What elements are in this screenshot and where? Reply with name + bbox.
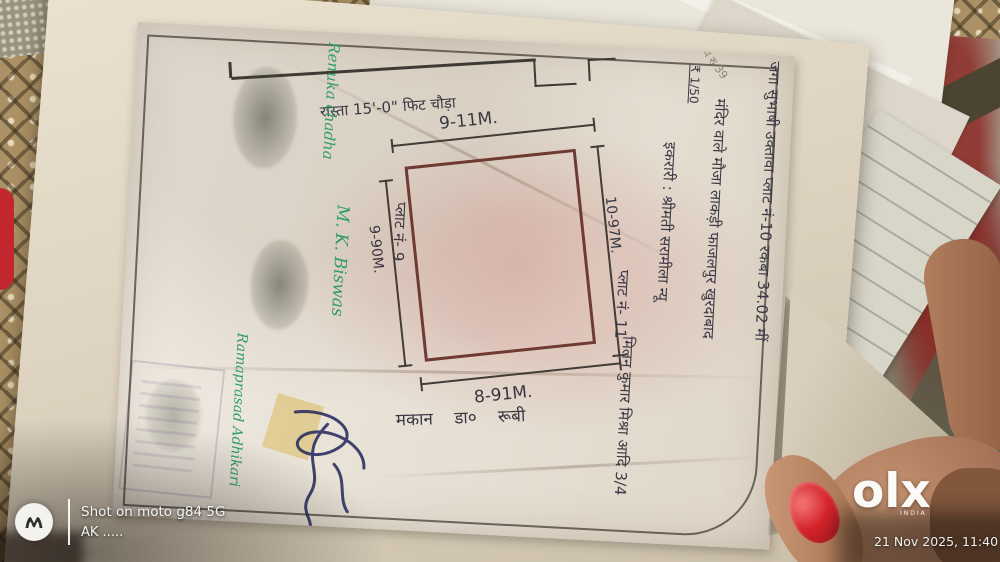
road-boundary-notch — [533, 59, 576, 87]
red-bangle — [0, 188, 14, 290]
watermark-subtitle: AK ..... — [81, 525, 225, 540]
watermark-divider — [68, 499, 70, 545]
motorola-logo-icon — [15, 503, 53, 541]
photo-scene: 48 रास्ता 15'-0" फिट चौड़ा 9-11M. 8-91M.… — [0, 0, 1000, 562]
adjacent-plot-9-label: प्लाट नं- 9 — [388, 201, 411, 261]
camera-watermark: Shot on moto g84 5G AK ..... — [15, 499, 225, 545]
photo-timestamp: 21 Nov 2025, 11:40 am — [874, 534, 1000, 549]
olx-watermark: olx INDIA — [852, 470, 931, 517]
stamp-value-note: ₹ 1/50 — [687, 65, 703, 104]
shot-on-text: Shot on moto g84 5G — [81, 504, 225, 520]
motorola-batwing-icon — [22, 510, 46, 534]
olx-logo: olx — [852, 470, 931, 515]
road-boundary-corner — [588, 58, 617, 81]
olx-country-label: INDIA — [852, 510, 931, 517]
plot-outline: 9-11M. 8-91M. 9-90M. 10-97M. — [405, 149, 597, 362]
adjacent-plot-11-label: प्लाट नं- 11 — [610, 269, 634, 339]
house-label: मकान डा० रूबी — [395, 403, 525, 431]
